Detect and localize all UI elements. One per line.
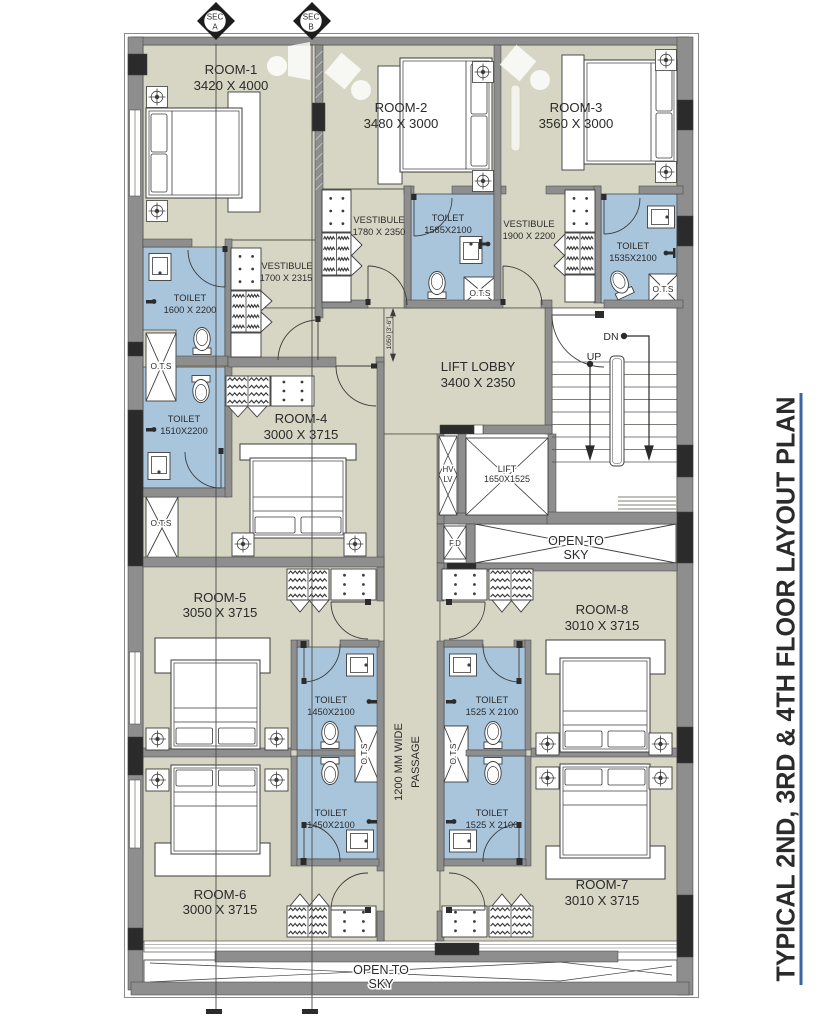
svg-text:UP: UP (587, 351, 602, 363)
svg-text:LIFT: LIFT (498, 464, 517, 474)
svg-text:LIFT LOBBY: LIFT LOBBY (441, 359, 516, 374)
svg-text:ROOM-5: ROOM-5 (194, 590, 247, 605)
svg-text:1600 X 2200: 1600 X 2200 (164, 305, 217, 315)
svg-text:TYPICAL 2ND, 3RD & 4TH FLOOR L: TYPICAL 2ND, 3RD & 4TH FLOOR LAYOUT PLAN (771, 397, 801, 982)
svg-text:VESTIBULE: VESTIBULE (353, 215, 404, 225)
svg-text:3400 X 2350: 3400 X 2350 (441, 375, 516, 390)
svg-text:3050 X 3715: 3050 X 3715 (183, 605, 258, 620)
svg-text:TOILET: TOILET (617, 241, 650, 251)
svg-text:TOILET: TOILET (168, 414, 201, 424)
svg-text:SKY: SKY (563, 548, 589, 562)
svg-text:O.T.S: O.T.S (359, 743, 369, 764)
svg-text:3560 X 3000: 3560 X 3000 (539, 116, 614, 131)
svg-text:A: A (212, 23, 218, 32)
svg-text:3000 X 3715: 3000 X 3715 (264, 427, 339, 442)
svg-text:TOILET: TOILET (476, 808, 509, 818)
svg-text:O.T.S: O.T.S (470, 288, 491, 298)
svg-text:ROOM-1: ROOM-1 (205, 62, 258, 77)
svg-text:VESTIBULE: VESTIBULE (503, 219, 554, 229)
svg-text:ROOM-7: ROOM-7 (576, 877, 629, 892)
svg-text:1050 [3'-6"]: 1050 [3'-6"] (386, 316, 393, 349)
svg-text:TOILET: TOILET (476, 695, 509, 705)
svg-text:ROOM-4: ROOM-4 (275, 411, 328, 426)
svg-text:1780 X 2350: 1780 X 2350 (353, 227, 406, 237)
svg-text:PASSAGE: PASSAGE (410, 736, 422, 788)
svg-text:HV: HV (443, 465, 455, 474)
svg-text:O.T.S: O.T.S (151, 361, 172, 371)
svg-text:1700 X 2315: 1700 X 2315 (260, 273, 313, 283)
svg-text:B: B (308, 23, 313, 32)
svg-text:ROOM-8: ROOM-8 (576, 602, 629, 617)
svg-text:1525 X 2100: 1525 X 2100 (466, 820, 519, 830)
svg-text:SEC: SEC (207, 13, 224, 22)
svg-text:3010 X 3715: 3010 X 3715 (565, 893, 640, 908)
svg-text:O.T.S: O.T.S (653, 284, 674, 294)
svg-text:1525 X 2100: 1525 X 2100 (466, 707, 519, 717)
svg-text:1585X2100: 1585X2100 (424, 225, 472, 235)
svg-text:1510X2200: 1510X2200 (160, 426, 208, 436)
svg-text:TOILET: TOILET (315, 695, 348, 705)
svg-text:ROOM-3: ROOM-3 (550, 100, 603, 115)
svg-text:VESTIBULE: VESTIBULE (261, 261, 312, 271)
svg-text:OPEN TO: OPEN TO (548, 534, 604, 548)
svg-text:1900 X 2200: 1900 X 2200 (503, 231, 556, 241)
svg-text:LV: LV (444, 475, 454, 484)
svg-text:ROOM-6: ROOM-6 (194, 887, 247, 902)
svg-text:SKY: SKY (368, 977, 394, 991)
svg-text:TOILET: TOILET (432, 213, 465, 223)
svg-text:1650X1525: 1650X1525 (484, 474, 530, 484)
svg-text:1535X2100: 1535X2100 (609, 253, 657, 263)
svg-text:OPEN TO: OPEN TO (353, 963, 409, 977)
svg-text:1200 MM WIDE: 1200 MM WIDE (393, 723, 405, 801)
svg-text:3480 X 3000: 3480 X 3000 (364, 116, 439, 131)
svg-text:ROOM-2: ROOM-2 (375, 100, 428, 115)
svg-text:3000 X 3715: 3000 X 3715 (183, 902, 258, 917)
svg-text:F.D: F.D (449, 539, 461, 548)
svg-text:O.T.S: O.T.S (448, 743, 458, 764)
svg-text:3420 X 4000: 3420 X 4000 (194, 78, 269, 93)
svg-text:1450X2100: 1450X2100 (307, 820, 355, 830)
svg-text:O.T.S: O.T.S (151, 518, 172, 528)
svg-text:TOILET: TOILET (174, 293, 207, 303)
svg-text:SEC: SEC (303, 13, 320, 22)
svg-text:TOILET: TOILET (315, 808, 348, 818)
svg-text:1450X2100: 1450X2100 (307, 707, 355, 717)
svg-text:3010 X 3715: 3010 X 3715 (565, 618, 640, 633)
svg-text:DN: DN (603, 331, 618, 343)
